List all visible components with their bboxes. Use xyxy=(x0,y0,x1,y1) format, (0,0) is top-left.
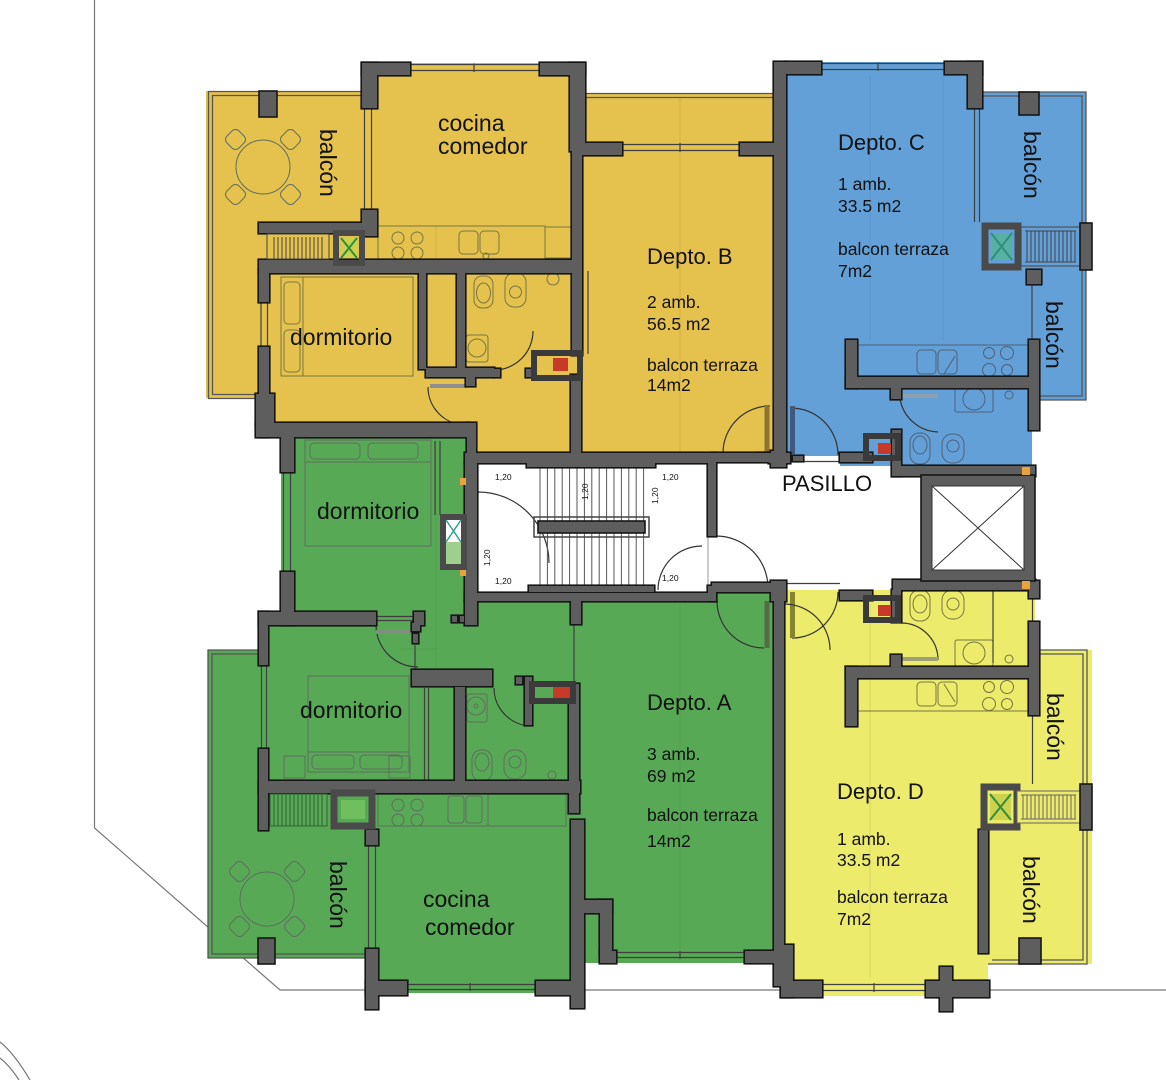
svg-text:1,20: 1,20 xyxy=(662,472,679,482)
svg-text:1,20: 1,20 xyxy=(650,487,660,504)
svg-text:balcón: balcón xyxy=(1019,131,1045,199)
svg-text:balcón: balcón xyxy=(325,861,351,929)
svg-text:Depto. D: Depto. D xyxy=(837,779,924,804)
svg-text:comedor: comedor xyxy=(425,914,515,940)
svg-text:14m2: 14m2 xyxy=(647,831,691,851)
svg-text:1,20: 1,20 xyxy=(495,472,512,482)
svg-text:dormitorio: dormitorio xyxy=(300,697,402,723)
svg-text:2 amb.: 2 amb. xyxy=(647,292,701,312)
svg-text:balcón: balcón xyxy=(1042,693,1068,761)
svg-text:1 amb.: 1 amb. xyxy=(838,174,892,194)
svg-text:7m2: 7m2 xyxy=(838,261,872,281)
svg-text:33.5 m2: 33.5 m2 xyxy=(837,850,900,870)
svg-text:1,20: 1,20 xyxy=(482,549,492,566)
svg-text:33.5 m2: 33.5 m2 xyxy=(838,196,901,216)
svg-text:balcon terraza: balcon terraza xyxy=(838,239,949,259)
svg-text:balcón: balcón xyxy=(1041,301,1067,369)
svg-text:balcón: balcón xyxy=(315,129,341,197)
svg-text:1,20: 1,20 xyxy=(580,483,590,500)
svg-text:1,20: 1,20 xyxy=(495,576,512,586)
svg-text:comedor: comedor xyxy=(438,133,528,159)
svg-text:7m2: 7m2 xyxy=(837,909,871,929)
svg-text:dormitorio: dormitorio xyxy=(290,324,392,350)
svg-text:cocina: cocina xyxy=(423,886,490,912)
svg-text:1 amb.: 1 amb. xyxy=(837,829,891,849)
svg-text:Depto. A: Depto. A xyxy=(647,690,732,715)
svg-text:69 m2: 69 m2 xyxy=(647,766,696,786)
svg-text:Depto. C: Depto. C xyxy=(838,130,925,155)
svg-text:balcon terraza: balcon terraza xyxy=(647,355,758,375)
svg-text:1,20: 1,20 xyxy=(662,573,679,583)
svg-text:PASILLO: PASILLO xyxy=(782,471,872,496)
svg-text:Depto. B: Depto. B xyxy=(647,244,733,269)
svg-text:balcon terraza: balcon terraza xyxy=(837,887,948,907)
svg-text:balcón: balcón xyxy=(1018,856,1044,924)
svg-text:3 amb.: 3 amb. xyxy=(647,744,701,764)
svg-text:56.5 m2: 56.5 m2 xyxy=(647,314,710,334)
svg-text:14m2: 14m2 xyxy=(647,375,691,395)
svg-text:balcon terraza: balcon terraza xyxy=(647,805,758,825)
svg-text:dormitorio: dormitorio xyxy=(317,498,419,524)
